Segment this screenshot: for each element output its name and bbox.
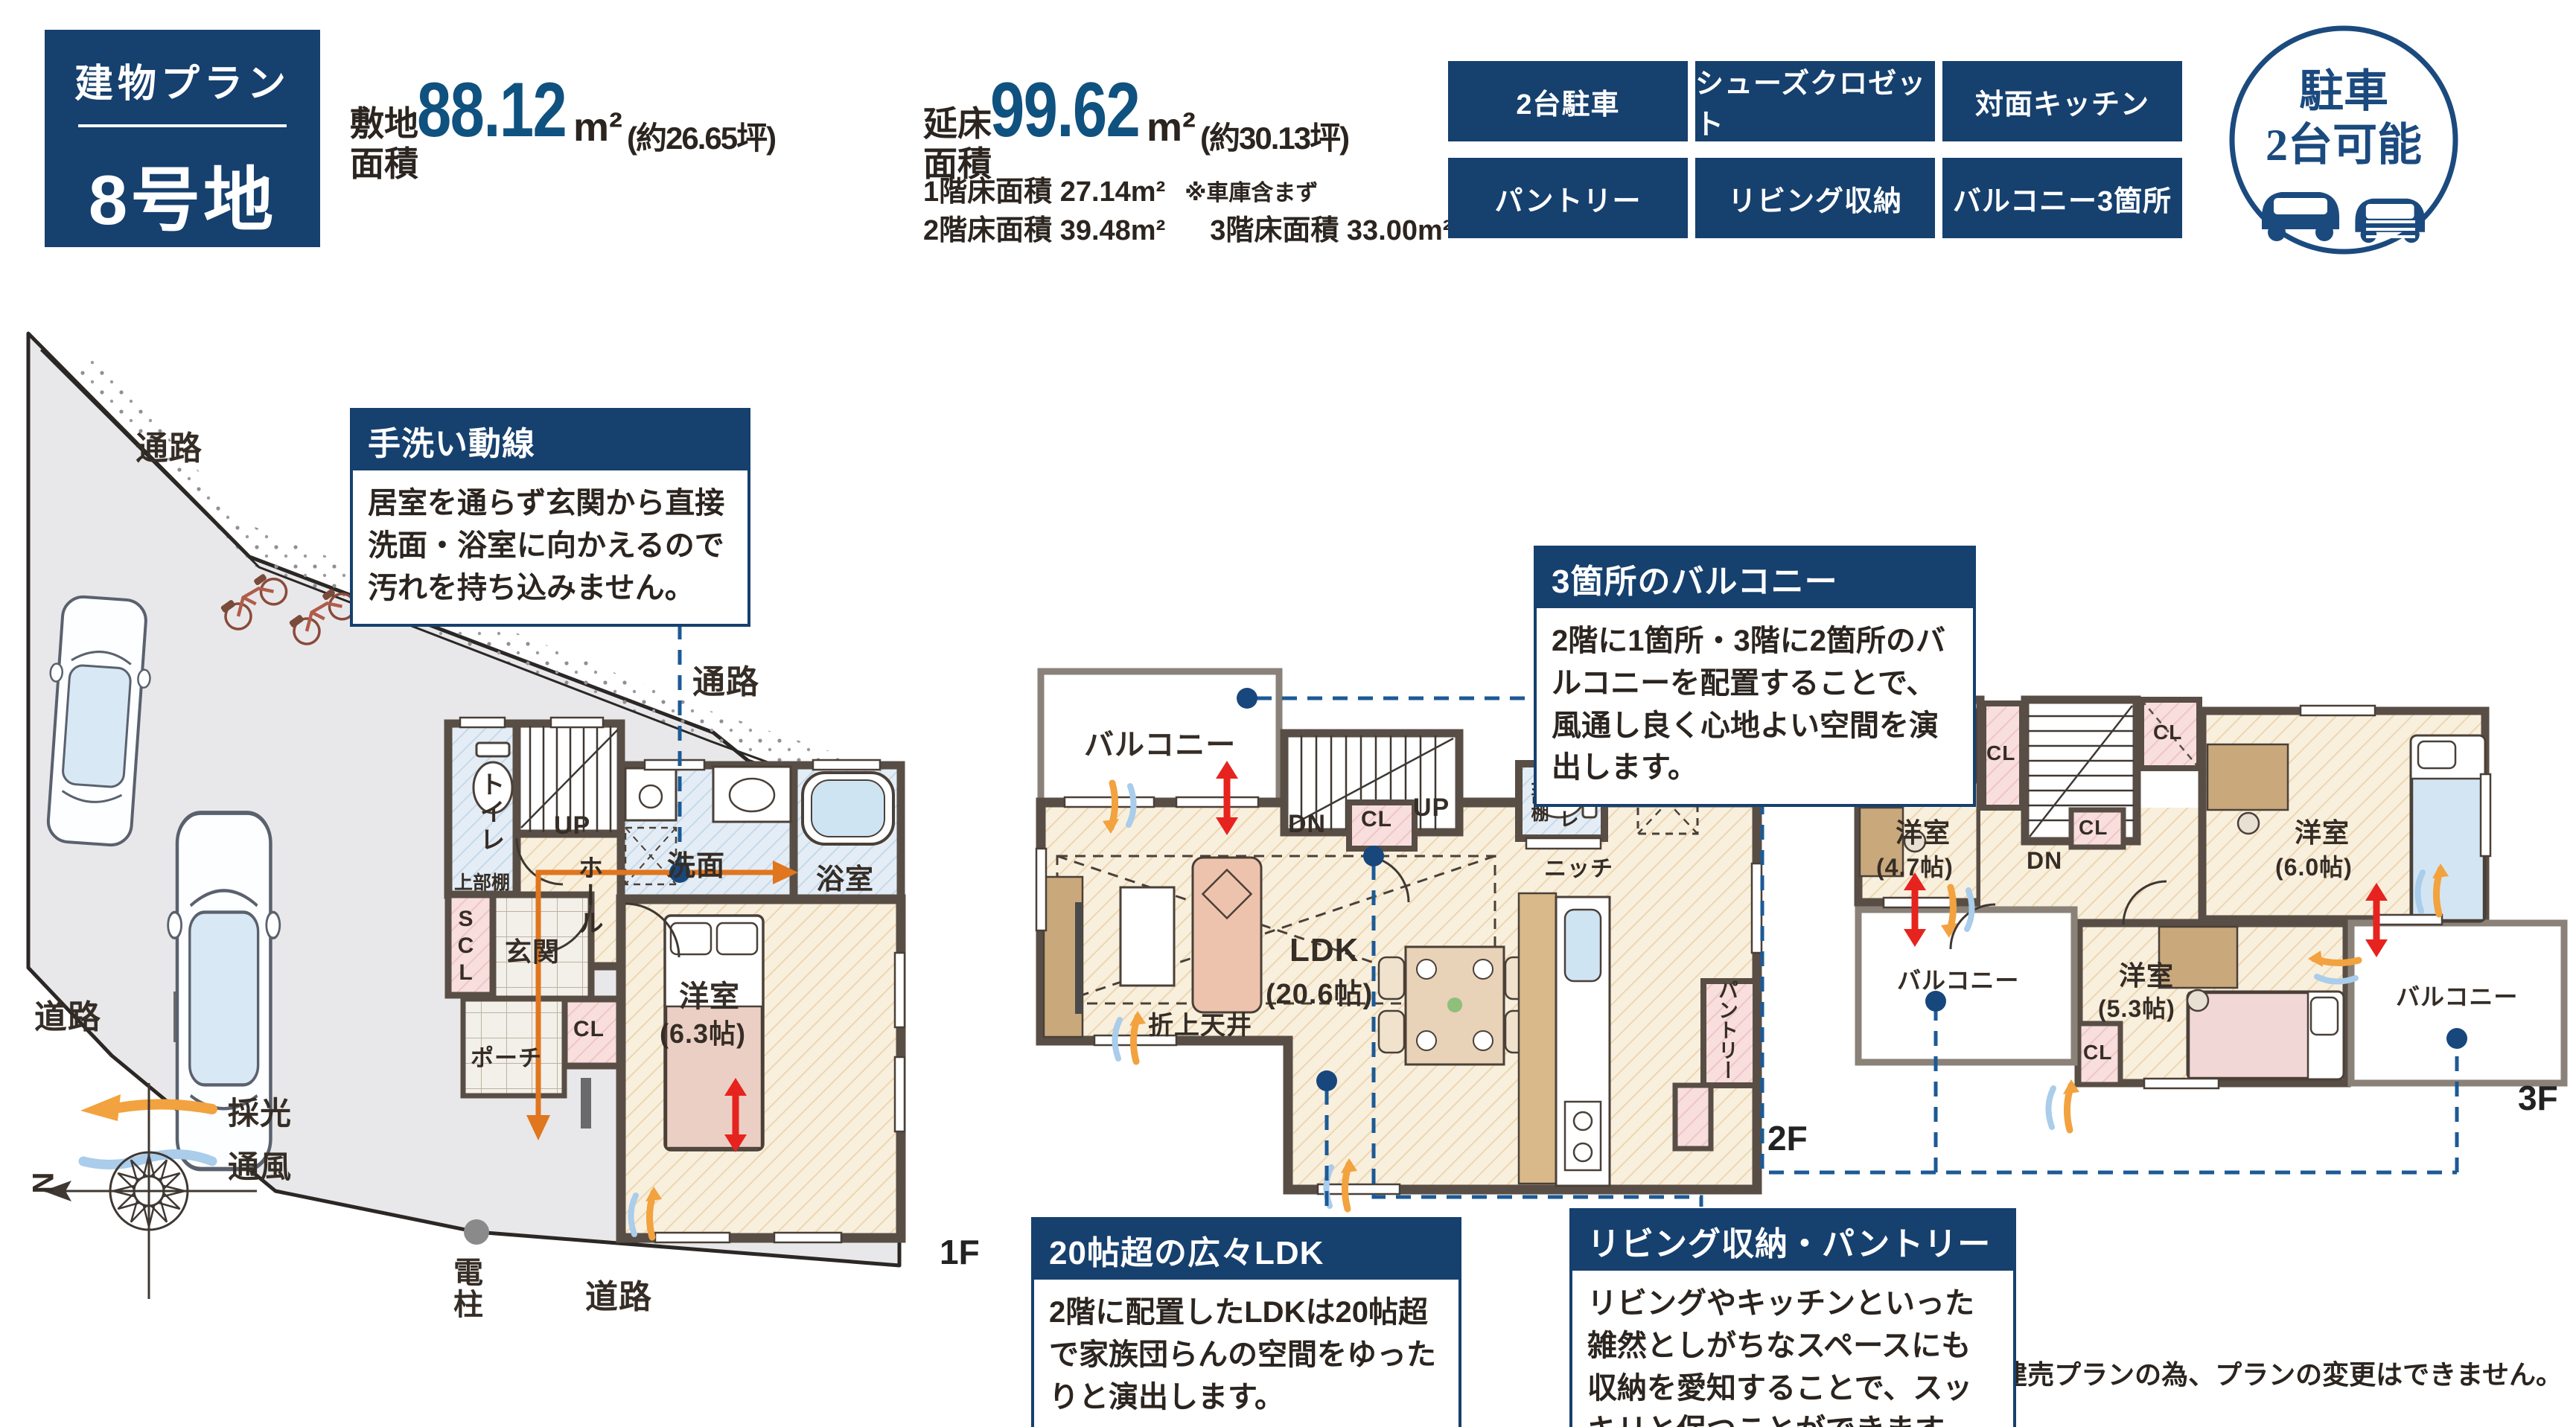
room-label-cl: CL (1986, 741, 2015, 765)
room-label-entrance: 玄関 (505, 930, 560, 969)
callout-body: 居室を通らず玄関から直接洗面・浴室に向かえるので汚れを持ち込みません。 (353, 470, 747, 624)
room-label-cl: CL (1361, 807, 1392, 832)
feature-tag: バルコニー3箇所 (1942, 158, 2182, 238)
room-label-cl: CL (2083, 1041, 2112, 1064)
legend-daylight-label: 採光 (228, 1088, 292, 1134)
stairs-dn-label: DN (2027, 847, 2062, 875)
floor-label-3f: 3F (2518, 1078, 2558, 1118)
sofa-icon (1193, 858, 1261, 1012)
room-label-balcony: バルコニー (1084, 721, 1236, 764)
niche-label: ニッチ (1544, 850, 1613, 883)
room-size-label: (6.0帖) (2275, 849, 2353, 883)
feature-tag: パントリー (1448, 158, 1688, 238)
floor1-area: 1階床面積 27.14m² (923, 168, 1165, 209)
room-label-toilet: トイレ (472, 771, 508, 854)
feature-tag: リビング収納 (1695, 158, 1935, 238)
floor-area-tsubo: (約30.13坪) (1200, 113, 1348, 159)
room-label-bath: 浴室 (816, 856, 874, 897)
callout-title: リビング収納・パントリー (1572, 1211, 2013, 1271)
road-label: 道路 (34, 990, 101, 1038)
garage-note: ※車庫含まず (1185, 174, 1318, 209)
passage-label: 通路 (692, 655, 759, 703)
room-label-ldk: LDK (1289, 932, 1359, 969)
utility-pole-label: 電柱 (444, 1257, 487, 1321)
road-label: 道路 (585, 1270, 652, 1318)
floor2-area: 2階床面積 39.48m² (923, 207, 1165, 248)
feature-tag: 対面キッチン (1942, 61, 2182, 141)
site-area-tsubo: (約26.65坪) (627, 113, 775, 159)
room-label-scl: SCL (453, 907, 478, 987)
room-label-bedroom: 洋室 (679, 972, 740, 1015)
flyer-page: 建物プラン 8号地 敷地 面積 88.12 m² (約26.65坪) 延床 面積… (0, 0, 2576, 1427)
callout-ldk: 20帖超の広々LDK 2階に配置したLDKは20帖超で家族団らんの空間をゆったり… (1031, 1217, 1461, 1427)
room-size-label: (5.3帖) (2098, 990, 2175, 1024)
floor-label-2f: 2F (1767, 1118, 1808, 1158)
feature-tag: 2台駐車 (1448, 61, 1688, 141)
room-label-balcony: バルコニー (2396, 978, 2518, 1012)
legend-airflow-label: 通風 (228, 1142, 292, 1187)
floor-area-value: 99.62 (990, 71, 1139, 149)
stairs-up-label: UP (1413, 794, 1450, 823)
room-label-wash: 洗面 (667, 843, 725, 884)
kitchen-icon (1519, 893, 1610, 1186)
callout-title: 手洗い動線 (353, 411, 747, 470)
room-label-shelf: 上部棚 (454, 868, 510, 895)
plan-box: 建物プラン 8号地 (45, 30, 320, 247)
feature-tag: シューズクロゼット (1695, 61, 1935, 141)
room-size-label: (4.7帖) (1876, 849, 1954, 883)
room-label-pantry: パントリー (1712, 980, 1741, 1080)
callout-body: 2階に1箇所・3階に2箇所のバルコニーを配置することで、風通し良く心地よい空間を… (1537, 608, 1973, 804)
utility-pole-dot (464, 1219, 489, 1245)
bathtub-icon (803, 773, 893, 844)
floor-label-1f: 1F (940, 1232, 980, 1272)
passage-label: 通路 (136, 421, 203, 469)
disclaimer-note: ※建売プランの為、プランの変更はできません。 (1974, 1353, 2563, 1392)
callout-storage: リビング収納・パントリー リビングやキッチンといった雑然としがちなスペースにも収… (1569, 1208, 2016, 1427)
badge-line2: 2台可能 (2217, 109, 2470, 173)
callout-title: 20帖超の広々LDK (1034, 1220, 1458, 1280)
plan-box-title: 建物プラン (74, 52, 290, 108)
room-size-label: (6.3帖) (660, 1012, 746, 1051)
stairs-up-label: UP (554, 811, 590, 840)
compass-north-label: N (27, 1172, 60, 1194)
lot-number: 8号地 (89, 144, 276, 245)
room-label-bedroom: 洋室 (2295, 811, 2350, 850)
room-label-porch: ポーチ (471, 1039, 542, 1073)
site-area-unit: m² (573, 104, 622, 150)
floor3-area: 3階床面積 33.00m² (1210, 207, 1452, 248)
sink-icon (713, 767, 791, 822)
callout-body: 2階に配置したLDKは20帖超で家族団らんの空間をゆったりと演出します。 (1034, 1280, 1458, 1427)
ceiling-label: 折上天井 (1148, 1005, 1252, 1041)
site-area-label: 面積 (350, 137, 418, 186)
tv-board-icon (1044, 877, 1083, 1037)
stairs-dn-label: DN (1288, 810, 1326, 839)
room-size-label: (20.6帖) (1266, 971, 1373, 1012)
room-label-hall: ホール (570, 855, 607, 937)
room-label-cl: CL (573, 1017, 605, 1042)
site-area-value: 88.12 (417, 71, 566, 149)
room-label-balcony: バルコニー (1897, 962, 2019, 996)
callout-title: 3箇所のバルコニー (1537, 549, 1973, 608)
floor-area-unit: m² (1147, 104, 1196, 150)
room-label-bedroom: 洋室 (1896, 811, 1951, 850)
table-icon (1120, 887, 1174, 986)
room-label-cl: CL (2079, 816, 2108, 840)
room-label-bedroom: 洋室 (2119, 954, 2174, 993)
callout-balconies: 3箇所のバルコニー 2階に1箇所・3階に2箇所のバルコニーを配置することで、風通… (1534, 546, 1976, 807)
plan-box-divider (78, 124, 287, 127)
callout-body: リビングやキッチンといった雑然としがちなスペースにも収納を愛知することで、スッキ… (1572, 1271, 2013, 1427)
callout-hand-wash: 手洗い動線 居室を通らず玄関から直接洗面・浴室に向かえるので汚れを持ち込みません… (350, 408, 750, 627)
room-label-cl: CL (2153, 721, 2182, 744)
